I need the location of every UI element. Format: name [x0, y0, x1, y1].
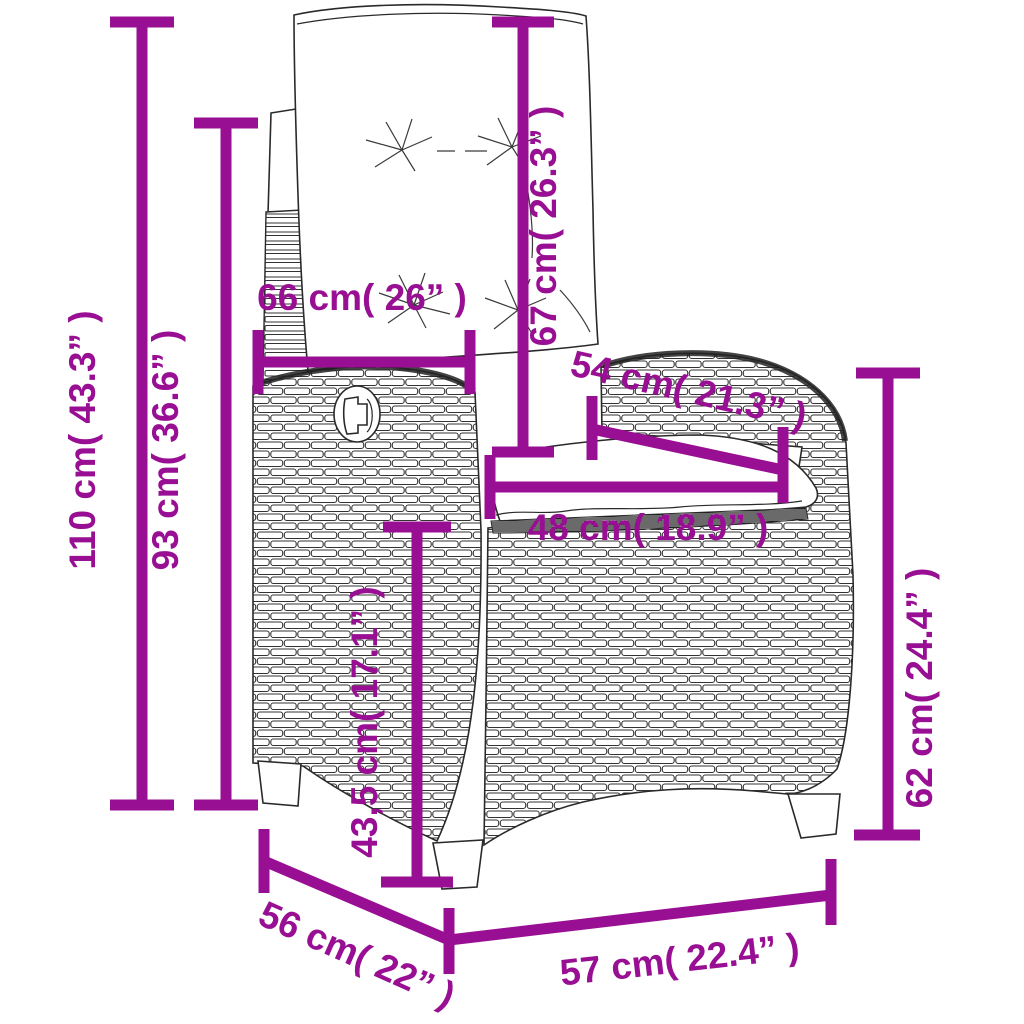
- dimension-backrest-height: 93 cm( 36.6” ): [145, 123, 258, 805]
- product-dimension-diagram: 110 cm( 43.3” ) 93 cm( 36.6” ) 66 cm( 26…: [0, 0, 1024, 1024]
- dimension-diagram-svg: 110 cm( 43.3” ) 93 cm( 36.6” ) 66 cm( 26…: [0, 0, 1024, 1024]
- dimension-armrest-height: 62 cm( 24.4” ): [854, 373, 940, 835]
- dimension-label-total-height: 110 cm( 43.3” ): [62, 310, 103, 569]
- rear-left-leg: [258, 761, 301, 806]
- dimension-label-width: 57 cm( 22.4” ): [558, 926, 802, 994]
- dimension-label-backrest-width: 66 cm( 26” ): [257, 277, 467, 318]
- dimension-label-depth: 56 cm( 22” ): [253, 893, 461, 1016]
- dimension-label-backrest-height: 93 cm( 36.6” ): [145, 330, 186, 571]
- dimension-label-seat-width: 48 cm( 18.9” ): [528, 507, 769, 548]
- dimension-label-armrest-height: 62 cm( 24.4” ): [899, 568, 940, 809]
- recline-knob: [334, 386, 380, 442]
- dimension-label-back-cushion: 67 cm( 26.3” ): [523, 106, 564, 347]
- dimension-label-seat-height: 43,5 cm( 17.1” ): [344, 586, 385, 857]
- dimension-width: 57 cm( 22.4” ): [449, 859, 831, 994]
- front-right-leg: [788, 794, 840, 838]
